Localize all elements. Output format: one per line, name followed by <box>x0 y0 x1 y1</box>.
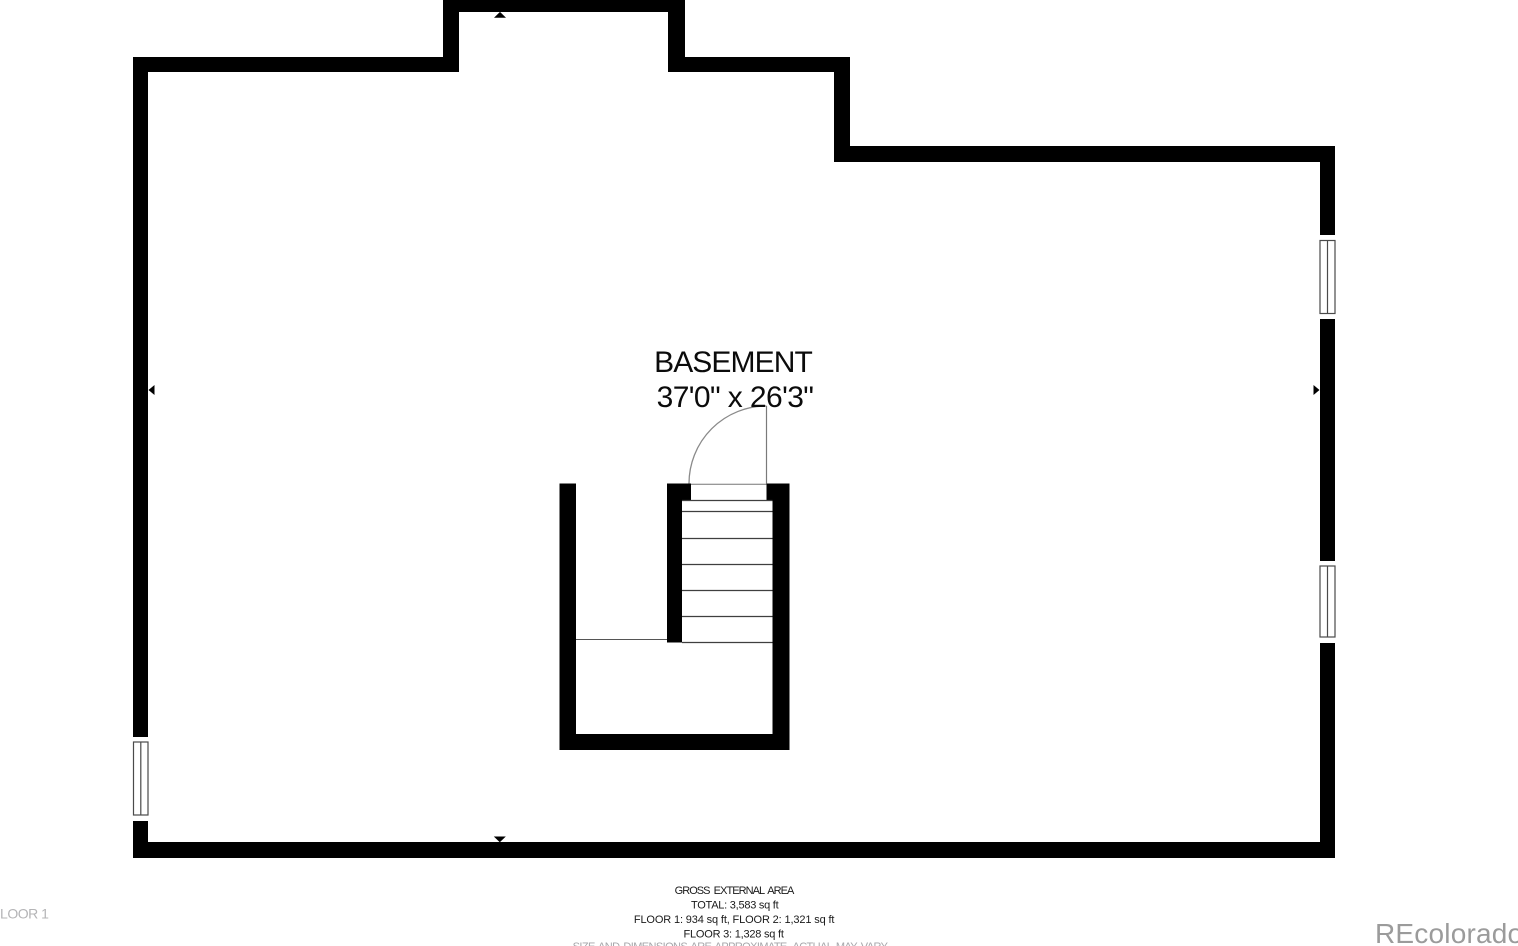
svg-text:TOTAL: 3,583 sq ft: TOTAL: 3,583 sq ft <box>691 900 779 912</box>
svg-text:GROSS EXTERNAL AREA: GROSS EXTERNAL AREA <box>675 885 795 897</box>
svg-text:FLOOR 1: FLOOR 1 <box>0 906 49 922</box>
svg-text:FLOOR 1: 934 sq ft, FLOOR 2: 1: FLOOR 1: 934 sq ft, FLOOR 2: 1,321 sq ft <box>634 914 835 926</box>
svg-text:37'0" x 26'3": 37'0" x 26'3" <box>657 381 814 414</box>
svg-text:SIZE AND DIMENSIONS ARE APPROX: SIZE AND DIMENSIONS ARE APPROXIMATE, ACT… <box>573 941 889 946</box>
svg-text:FLOOR 3: 1,328 sq ft: FLOOR 3: 1,328 sq ft <box>684 929 784 941</box>
svg-text:BASEMENT: BASEMENT <box>654 346 812 379</box>
svg-text:REcolorado: REcolorado <box>1375 918 1518 946</box>
